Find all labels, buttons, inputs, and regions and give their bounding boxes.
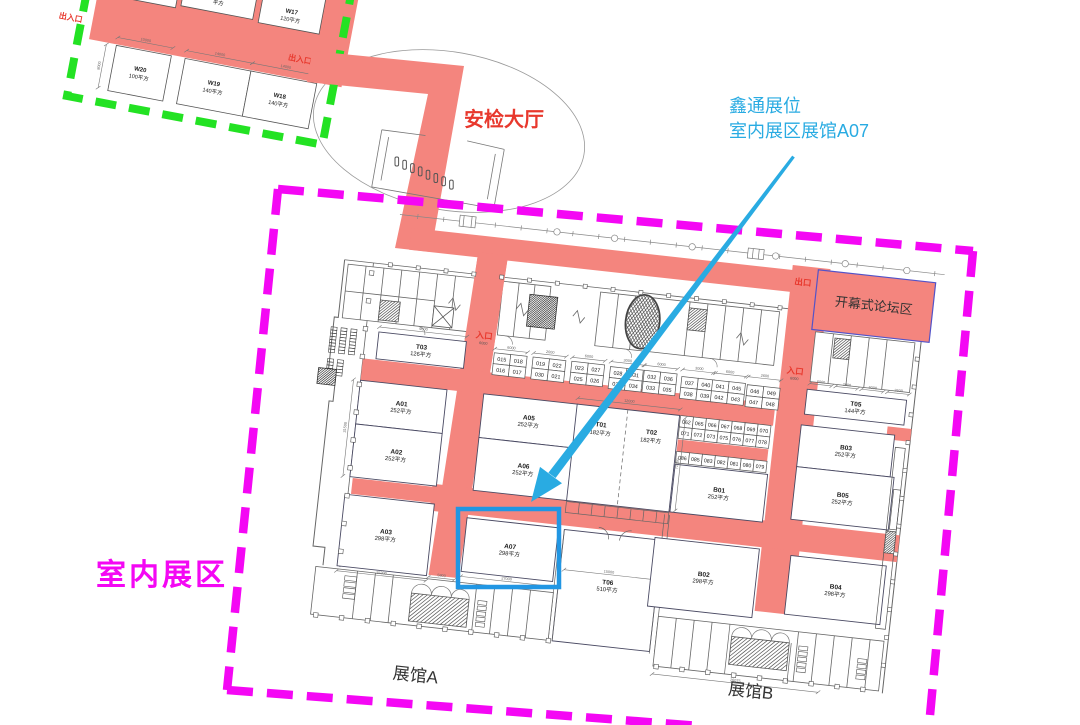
svg-text:31500: 31500 bbox=[343, 422, 348, 433]
svg-text:展馆A: 展馆A bbox=[392, 664, 440, 688]
svg-text:入口: 入口 bbox=[785, 365, 804, 377]
svg-text:A01: A01 bbox=[395, 400, 408, 408]
svg-text:037: 037 bbox=[684, 381, 694, 388]
svg-text:042: 042 bbox=[714, 395, 724, 402]
svg-text:6000: 6000 bbox=[868, 386, 877, 391]
svg-text:047: 047 bbox=[749, 400, 759, 407]
svg-text:室内展区展馆A07: 室内展区展馆A07 bbox=[729, 121, 869, 141]
svg-text:A05: A05 bbox=[523, 414, 536, 422]
svg-text:035: 035 bbox=[662, 387, 672, 394]
svg-text:076: 076 bbox=[732, 437, 741, 444]
svg-text:6000: 6000 bbox=[657, 362, 666, 367]
svg-text:032: 032 bbox=[647, 374, 657, 381]
svg-text:082: 082 bbox=[716, 460, 725, 467]
svg-text:039: 039 bbox=[700, 393, 710, 400]
svg-text:室内展区: 室内展区 bbox=[96, 558, 228, 592]
svg-text:048: 048 bbox=[765, 402, 775, 409]
svg-text:展馆B: 展馆B bbox=[727, 679, 774, 703]
svg-text:034: 034 bbox=[628, 383, 638, 390]
svg-text:入口: 入口 bbox=[474, 329, 493, 341]
svg-text:070: 070 bbox=[759, 428, 768, 435]
svg-text:B05: B05 bbox=[836, 492, 849, 500]
svg-text:080: 080 bbox=[742, 462, 751, 469]
svg-text:B02: B02 bbox=[697, 571, 710, 579]
svg-text:017: 017 bbox=[512, 370, 522, 377]
svg-text:040: 040 bbox=[701, 382, 711, 389]
svg-text:028: 028 bbox=[613, 371, 623, 378]
svg-text:016: 016 bbox=[496, 368, 506, 375]
svg-text:079: 079 bbox=[755, 464, 764, 471]
svg-text:078: 078 bbox=[758, 439, 767, 446]
svg-text:077: 077 bbox=[745, 438, 754, 445]
svg-text:2000: 2000 bbox=[546, 350, 555, 355]
svg-text:049: 049 bbox=[766, 391, 776, 398]
svg-text:069: 069 bbox=[746, 427, 755, 434]
svg-text:2600: 2600 bbox=[894, 388, 903, 393]
svg-text:T02: T02 bbox=[646, 429, 658, 437]
svg-text:8000: 8000 bbox=[97, 61, 103, 70]
svg-text:075: 075 bbox=[719, 435, 728, 442]
svg-text:A06: A06 bbox=[517, 462, 530, 470]
svg-text:030: 030 bbox=[535, 372, 545, 379]
svg-text:026: 026 bbox=[590, 378, 600, 385]
svg-text:023: 023 bbox=[574, 365, 584, 372]
svg-text:T03: T03 bbox=[415, 344, 427, 352]
svg-text:067: 067 bbox=[720, 424, 729, 431]
svg-text:出口: 出口 bbox=[794, 276, 812, 288]
svg-text:085: 085 bbox=[691, 457, 700, 464]
svg-text:5800: 5800 bbox=[437, 573, 446, 578]
svg-text:A03: A03 bbox=[380, 528, 393, 536]
svg-text:025: 025 bbox=[573, 376, 583, 383]
svg-text:6000: 6000 bbox=[726, 370, 735, 375]
svg-text:T06: T06 bbox=[602, 579, 614, 587]
svg-text:045: 045 bbox=[732, 386, 742, 393]
svg-text:安检大厅: 安检大厅 bbox=[464, 107, 544, 131]
svg-text:3000: 3000 bbox=[623, 358, 632, 363]
svg-text:2600: 2600 bbox=[760, 374, 769, 379]
svg-text:A02: A02 bbox=[390, 448, 403, 456]
svg-text:6000: 6000 bbox=[817, 380, 826, 385]
svg-text:046: 046 bbox=[750, 389, 760, 396]
svg-text:鑫通展位: 鑫通展位 bbox=[729, 96, 801, 116]
svg-text:066: 066 bbox=[707, 422, 716, 429]
svg-text:3000: 3000 bbox=[695, 366, 704, 371]
svg-text:T05: T05 bbox=[850, 401, 862, 409]
svg-text:043: 043 bbox=[731, 397, 741, 404]
svg-text:073: 073 bbox=[706, 434, 715, 441]
svg-text:6000: 6000 bbox=[507, 346, 516, 351]
svg-text:081: 081 bbox=[729, 461, 738, 468]
svg-text:A07: A07 bbox=[504, 543, 517, 551]
svg-text:B03: B03 bbox=[840, 444, 853, 452]
svg-text:033: 033 bbox=[646, 385, 656, 392]
svg-text:019: 019 bbox=[536, 361, 546, 368]
svg-text:072: 072 bbox=[693, 432, 702, 439]
svg-text:出入口: 出入口 bbox=[58, 10, 83, 24]
svg-text:2000: 2000 bbox=[842, 383, 851, 388]
svg-text:038: 038 bbox=[683, 391, 693, 398]
svg-text:068: 068 bbox=[733, 425, 742, 432]
svg-text:B04: B04 bbox=[829, 583, 842, 591]
svg-text:015: 015 bbox=[497, 357, 507, 364]
svg-text:021: 021 bbox=[551, 374, 561, 381]
svg-text:083: 083 bbox=[704, 458, 713, 465]
svg-text:6000: 6000 bbox=[585, 354, 594, 359]
svg-text:027: 027 bbox=[591, 367, 601, 374]
svg-text:B01: B01 bbox=[713, 487, 726, 495]
svg-text:018: 018 bbox=[513, 359, 523, 366]
svg-text:065: 065 bbox=[695, 421, 704, 428]
svg-text:062: 062 bbox=[682, 420, 691, 427]
svg-text:071: 071 bbox=[680, 431, 689, 438]
svg-text:041: 041 bbox=[715, 384, 725, 391]
svg-text:022: 022 bbox=[552, 363, 562, 370]
svg-text:036: 036 bbox=[663, 376, 673, 383]
